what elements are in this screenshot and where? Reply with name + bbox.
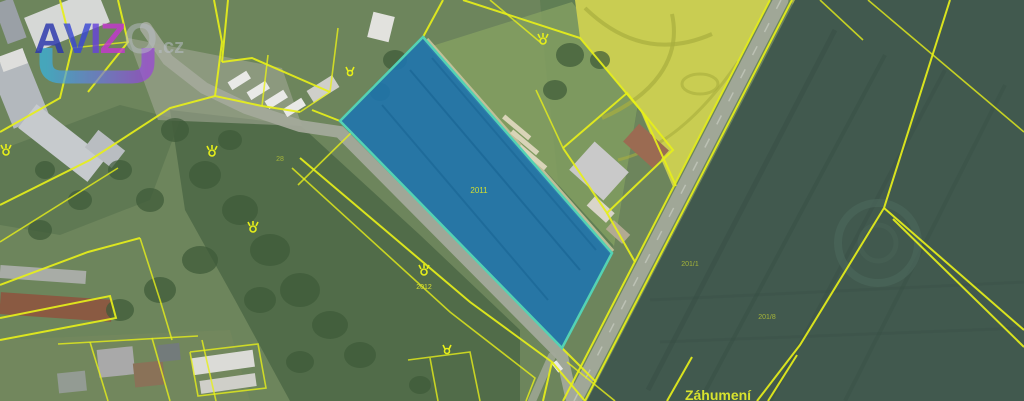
parcel-number-label: 2011 (470, 186, 488, 195)
parcel-number-label: 28 (276, 156, 284, 163)
parcel-number-label: 2012 (416, 284, 432, 291)
parcel-number-label: 201/1 (681, 261, 699, 268)
parcel-number-label: 201/8 (758, 314, 776, 321)
place-name-label: Záhumení (685, 387, 752, 401)
cadastral-map[interactable]: 2011 2012 201/1 201/8 28 Záhumení AVIZO.… (0, 0, 1024, 401)
aerial-map-canvas: 2011 2012 201/1 201/8 28 Záhumení (0, 0, 1024, 401)
